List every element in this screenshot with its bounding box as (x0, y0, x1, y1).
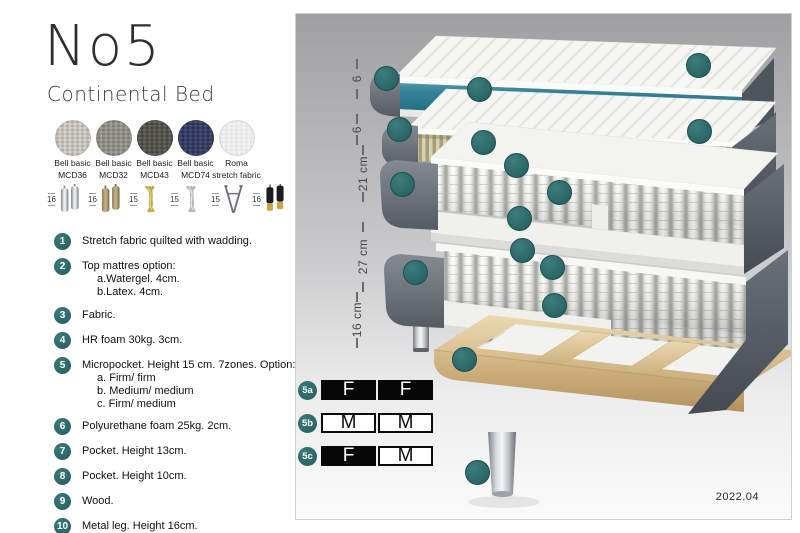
legend-text: Wood. (82, 493, 114, 510)
leg-icon (262, 184, 288, 214)
page-subtitle: Continental Bed (47, 82, 215, 106)
legend-number-badge: 9 (54, 493, 71, 510)
legend-item: 7 Pocket. Height 13cm. (54, 443, 299, 460)
legend-item: 3 Fabric. (54, 307, 299, 324)
tick-mark (171, 193, 178, 194)
tick-mark (362, 282, 364, 292)
legend-line: Stretch fabric quilted with wadding. (82, 236, 252, 248)
leg-height: 16 (252, 195, 261, 204)
leg-option: 16 (88, 184, 127, 214)
tick-mark (356, 292, 358, 302)
firmness-option-row: 5b MM (298, 413, 433, 433)
diagram-callout-badge (686, 53, 711, 78)
leg-height: 16 (47, 195, 56, 204)
firmness-option-row: 5c FM (298, 446, 433, 466)
legend-line: Polyurethane foam 25kg. 2cm. (82, 421, 231, 433)
fabric-swatch: Bell basic MCD43 (134, 120, 175, 180)
tick-mark (362, 145, 364, 155)
tick-mark (253, 205, 260, 206)
leg-height: 16 (88, 195, 97, 204)
fabric-swatch-name: Bell basic (54, 159, 90, 168)
firmness-bar: MM (321, 413, 433, 433)
fabric-swatch: Bell basic MCD36 (52, 120, 93, 180)
tick-mark (48, 193, 55, 194)
height-measurement: 16 cm (346, 292, 368, 348)
tick-mark (356, 59, 358, 69)
firmness-option-badge: 5b (298, 414, 317, 433)
measurement-label: 16 cm (350, 302, 364, 337)
fabric-swatch-circle (219, 120, 255, 156)
fabric-swatch: Bell basic MCD74 (175, 120, 216, 180)
firmness-bar: FM (321, 446, 433, 466)
firmness-cell: F (321, 446, 376, 466)
legend-item: 8 Pocket. Height 10cm. (54, 468, 299, 485)
product-sheet: No5 Continental Bed Bell basic MCD36 Bel… (0, 0, 800, 533)
tick-mark (130, 193, 137, 194)
fabric-swatch-code: MCD32 (99, 171, 128, 180)
tick-mark (356, 135, 358, 145)
firmness-cell: M (378, 446, 433, 466)
legend-item: 5 Micropocket. Height 15 cm. 7zones. Opt… (54, 357, 299, 411)
leg-height: 15 (170, 195, 179, 204)
diagram-callout-badge (510, 238, 535, 263)
legend-item: 6 Polyurethane foam 25kg. 2cm. (54, 418, 299, 435)
leg-icon (98, 184, 124, 214)
firmness-cell: M (378, 413, 433, 433)
legend-number-badge: 8 (54, 468, 71, 485)
fabric-swatch-row: Bell basic MCD36 Bell basic MCD32 Bell b… (52, 120, 257, 180)
tick-mark (212, 193, 219, 194)
legend-text: Top mattres option: a.Watergel. 4cm.b.La… (82, 258, 180, 299)
fabric-swatch-name: Roma (225, 159, 248, 168)
diagram-callout-badge (542, 293, 567, 318)
diagram-callout-badge (452, 347, 477, 372)
legend-number-badge: 2 (54, 258, 71, 275)
fabric-swatch-name: Bell basic (177, 159, 213, 168)
tick-mark (212, 205, 219, 206)
leg-option: 15 (211, 184, 250, 214)
legend-subline: b.Latex. 4cm. (82, 287, 180, 299)
leg-option: 15 (170, 184, 209, 214)
legend-number-badge: 5 (54, 357, 71, 374)
legend-item: 1 Stretch fabric quilted with wadding. (54, 233, 299, 250)
legend-number-badge: 6 (54, 418, 71, 435)
legend-text: Polyurethane foam 25kg. 2cm. (82, 418, 231, 435)
fabric-swatch-circle (137, 120, 173, 156)
leg-options-row: 16 16 15 (47, 184, 291, 214)
tick-mark (253, 193, 260, 194)
legend-text: Pocket. Height 10cm. (82, 468, 187, 485)
legend-item: 4 HR foam 30kg. 3cm. (54, 332, 299, 349)
legend-number-badge: 1 (54, 233, 71, 250)
legend-line: Metal leg. Height 16cm. (82, 521, 198, 533)
fabric-swatch-circle (178, 120, 214, 156)
leg-icon (180, 184, 206, 214)
firmness-cell: F (378, 380, 433, 400)
leg-icon (139, 184, 165, 214)
tick-mark (89, 205, 96, 206)
leg-icon (221, 184, 247, 214)
legend-line: Wood. (82, 496, 114, 508)
legend-text: Fabric. (82, 307, 116, 324)
page-title: No5 (44, 14, 162, 79)
legend-list: 1 Stretch fabric quilted with wadding. 2… (54, 233, 299, 533)
fabric-swatch-circle (55, 120, 91, 156)
measurement-label: 6 (350, 75, 364, 82)
tick-mark (356, 89, 358, 99)
firmness-option-row: 5a FF (298, 380, 433, 400)
bed-diagram-panel: 6 6 21 cm 27 cm 16 cm (295, 13, 792, 520)
tick-mark (362, 222, 364, 232)
tick-mark (48, 205, 55, 206)
leg-height: 15 (129, 195, 138, 204)
firmness-option-badge: 5c (298, 447, 317, 466)
fabric-swatch-code: MCD43 (140, 171, 169, 180)
legend-line: Pocket. Height 10cm. (82, 471, 187, 483)
legend-text: Micropocket. Height 15 cm. 7zones. Optio… (82, 357, 295, 411)
leg-option: 15 (129, 184, 168, 214)
legend-subline: a.Watergel. 4cm. (82, 274, 180, 286)
legend-line: Micropocket. Height 15 cm. 7zones. Optio… (82, 360, 295, 372)
legend-text: Stretch fabric quilted with wadding. (82, 233, 252, 250)
legend-text: Pocket. Height 13cm. (82, 443, 187, 460)
legend-subline: b. Medium/ medium (82, 386, 295, 398)
tick-mark (130, 205, 137, 206)
tick-mark (362, 192, 364, 202)
legend-number-badge: 3 (54, 307, 71, 324)
diagram-callout-badge (403, 260, 428, 285)
tick-mark (356, 114, 358, 124)
leg-option: 16 (47, 184, 86, 214)
diagram-callout-badge (547, 180, 572, 205)
legend-line: Top mattres option: (82, 261, 180, 273)
legend-number-badge: 4 (54, 332, 71, 349)
tick-mark (89, 193, 96, 194)
height-measurement: 6 (346, 114, 368, 145)
diagram-callout-badge (504, 153, 529, 178)
legend-line: HR foam 30kg. 3cm. (82, 335, 182, 347)
diagram-callout-badge (390, 172, 415, 197)
firmness-cell: F (321, 380, 376, 400)
legend-text: Metal leg. Height 16cm. (82, 518, 198, 533)
diagram-callout-badge (387, 117, 412, 142)
fabric-swatch-name: Bell basic (136, 159, 172, 168)
leg-option: 16 (252, 184, 291, 214)
fabric-swatch-name: Bell basic (95, 159, 131, 168)
fabric-swatch-circle (96, 120, 132, 156)
measurement-label: 6 (350, 126, 364, 133)
fabric-swatch-code: MCD74 (181, 171, 210, 180)
tick-mark (171, 205, 178, 206)
legend-number-badge: 7 (54, 443, 71, 460)
legend-item: 2 Top mattres option: a.Watergel. 4cm.b.… (54, 258, 299, 299)
firmness-bar: FF (321, 380, 433, 400)
fabric-swatch-code: MCD36 (58, 171, 87, 180)
leg-height: 15 (211, 195, 220, 204)
legend-line: Pocket. Height 13cm. (82, 446, 187, 458)
leg-icon (57, 184, 83, 214)
fabric-swatch: Roma stretch fabric (216, 120, 257, 180)
legend-number-badge: 10 (54, 518, 71, 533)
fabric-swatch: Bell basic MCD32 (93, 120, 134, 180)
diagram-callout-badge (465, 460, 490, 485)
height-measurement: 6 (346, 59, 368, 99)
diagram-callout-badge (540, 255, 565, 280)
legend-line: Fabric. (82, 310, 116, 322)
measurement-label: 27 cm (356, 239, 370, 274)
legend-item: 9 Wood. (54, 493, 299, 510)
diagram-callout-badge (374, 66, 399, 91)
height-measurement: 21 cm (352, 145, 374, 202)
fabric-swatch-code: stretch fabric (212, 171, 261, 180)
legend-subline: a. Firm/ firm (82, 373, 295, 385)
firmness-option-badge: 5a (298, 381, 317, 400)
legend-subline: c. Firm/ medium (82, 399, 295, 411)
diagram-callout-badge (467, 77, 492, 102)
legend-item: 10 Metal leg. Height 16cm. (54, 518, 299, 533)
height-measurement: 27 cm (352, 222, 374, 292)
diagram-callout-badge (507, 206, 532, 231)
diagram-callout-badge (687, 119, 712, 144)
legend-text: HR foam 30kg. 3cm. (82, 332, 182, 349)
measurement-label: 21 cm (356, 156, 370, 191)
version-label: 2022.04 (716, 491, 759, 503)
diagram-callout-badge (471, 130, 496, 155)
firmness-cell: M (321, 413, 376, 433)
tick-mark (356, 338, 358, 348)
